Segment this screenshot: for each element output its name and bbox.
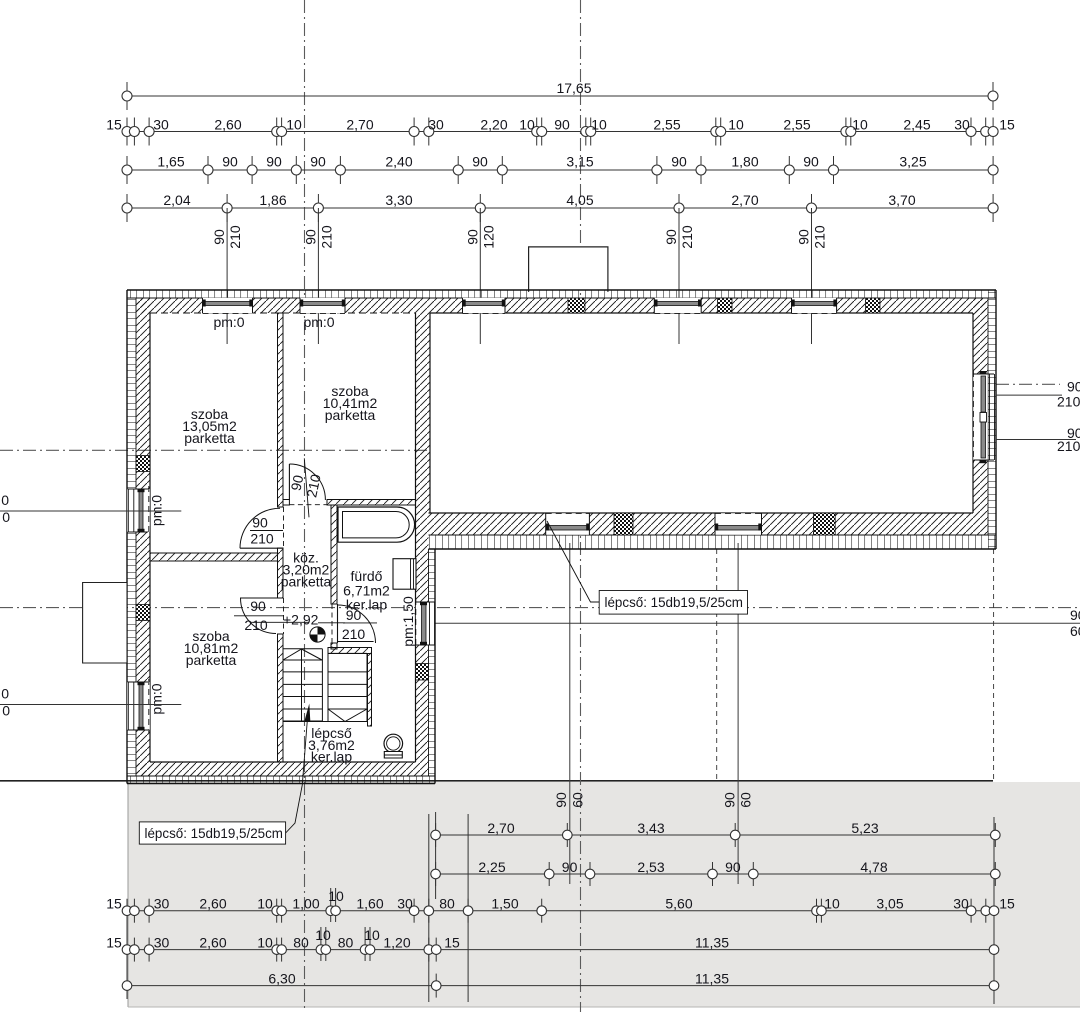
svg-text:0: 0 <box>1 492 9 508</box>
svg-text:6,30: 6,30 <box>268 971 295 987</box>
svg-text:10: 10 <box>257 896 273 912</box>
svg-text:2,55: 2,55 <box>783 117 810 133</box>
svg-text:80: 80 <box>293 935 309 951</box>
svg-text:pm:0: pm:0 <box>149 495 165 526</box>
svg-text:1,65: 1,65 <box>157 154 184 170</box>
svg-text:90: 90 <box>1070 607 1080 623</box>
svg-text:0: 0 <box>2 703 10 719</box>
svg-text:90: 90 <box>553 792 569 808</box>
svg-text:4,05: 4,05 <box>566 192 593 208</box>
svg-text:1,50: 1,50 <box>491 896 518 912</box>
svg-text:2,70: 2,70 <box>731 192 758 208</box>
svg-text:60: 60 <box>1070 623 1080 639</box>
svg-text:90: 90 <box>302 229 318 245</box>
svg-text:2,70: 2,70 <box>346 117 373 133</box>
svg-text:210: 210 <box>342 626 366 642</box>
svg-text:210: 210 <box>1057 394 1080 410</box>
svg-text:+2,92: +2,92 <box>283 612 319 628</box>
svg-text:3,15: 3,15 <box>566 154 593 170</box>
svg-text:2,60: 2,60 <box>199 935 226 951</box>
svg-text:2,20: 2,20 <box>480 117 507 133</box>
svg-text:2,53: 2,53 <box>637 859 664 875</box>
svg-text:210: 210 <box>244 617 268 633</box>
svg-text:1,60: 1,60 <box>356 896 383 912</box>
svg-text:15: 15 <box>999 896 1015 912</box>
svg-text:90: 90 <box>252 515 268 531</box>
svg-text:10: 10 <box>315 927 331 943</box>
svg-text:90: 90 <box>211 229 227 245</box>
svg-text:3,05: 3,05 <box>876 896 903 912</box>
svg-text:210: 210 <box>679 225 695 249</box>
svg-text:90: 90 <box>721 792 737 808</box>
svg-text:lépcső: 15db19,5/25cm: lépcső: 15db19,5/25cm <box>605 595 743 610</box>
svg-text:3,30: 3,30 <box>385 192 412 208</box>
svg-text:parketta: parketta <box>325 407 376 423</box>
svg-text:parketta: parketta <box>186 652 237 668</box>
svg-text:1,80: 1,80 <box>731 154 758 170</box>
svg-text:120: 120 <box>480 225 496 249</box>
svg-text:90: 90 <box>266 154 282 170</box>
svg-text:30: 30 <box>954 117 970 133</box>
svg-text:2,40: 2,40 <box>385 154 412 170</box>
svg-text:pm:0: pm:0 <box>149 683 165 714</box>
svg-text:30: 30 <box>153 117 169 133</box>
svg-text:10: 10 <box>364 927 380 943</box>
svg-text:80: 80 <box>338 935 354 951</box>
svg-text:2,70: 2,70 <box>487 820 514 836</box>
svg-text:30: 30 <box>428 117 444 133</box>
svg-text:1,86: 1,86 <box>259 192 286 208</box>
svg-text:pm:1,50: pm:1,50 <box>400 596 416 647</box>
svg-text:11,35: 11,35 <box>695 935 729 951</box>
svg-text:90: 90 <box>562 859 578 875</box>
svg-text:90: 90 <box>222 154 238 170</box>
svg-text:30: 30 <box>397 896 413 912</box>
svg-text:2,04: 2,04 <box>163 192 190 208</box>
svg-text:2,25: 2,25 <box>478 859 505 875</box>
svg-text:90: 90 <box>310 154 326 170</box>
svg-text:90: 90 <box>250 598 266 614</box>
svg-text:10: 10 <box>591 117 607 133</box>
svg-text:15: 15 <box>106 117 122 133</box>
svg-text:90: 90 <box>803 154 819 170</box>
svg-text:60: 60 <box>569 792 585 808</box>
svg-text:3,43: 3,43 <box>637 820 664 836</box>
svg-text:210: 210 <box>812 225 828 249</box>
svg-text:pm:0: pm:0 <box>213 314 244 330</box>
svg-text:0: 0 <box>1 686 9 702</box>
svg-text:210: 210 <box>227 225 243 249</box>
svg-text:90: 90 <box>464 229 480 245</box>
svg-text:90: 90 <box>671 154 687 170</box>
svg-text:10: 10 <box>328 888 344 904</box>
svg-text:10: 10 <box>852 117 868 133</box>
svg-text:15: 15 <box>106 896 122 912</box>
svg-text:60: 60 <box>738 792 754 808</box>
svg-text:ker.lap: ker.lap <box>311 749 352 765</box>
svg-text:90: 90 <box>663 229 679 245</box>
svg-text:90: 90 <box>725 859 741 875</box>
svg-text:90: 90 <box>472 154 488 170</box>
svg-text:10: 10 <box>257 935 273 951</box>
svg-text:5,60: 5,60 <box>665 896 692 912</box>
svg-text:11,35: 11,35 <box>695 971 729 987</box>
svg-text:30: 30 <box>154 896 170 912</box>
svg-text:15: 15 <box>444 935 460 951</box>
svg-text:2,60: 2,60 <box>214 117 241 133</box>
svg-text:90: 90 <box>796 229 812 245</box>
svg-text:15: 15 <box>999 117 1015 133</box>
svg-text:4,78: 4,78 <box>860 859 887 875</box>
svg-text:2,55: 2,55 <box>653 117 680 133</box>
svg-text:30: 30 <box>953 896 969 912</box>
svg-text:30: 30 <box>154 935 170 951</box>
svg-text:0: 0 <box>2 509 10 525</box>
svg-text:2,45: 2,45 <box>903 117 930 133</box>
svg-text:ker.lap: ker.lap <box>346 597 387 613</box>
svg-text:lépcső: 15db19,5/25cm: lépcső: 15db19,5/25cm <box>145 826 283 841</box>
svg-text:10: 10 <box>286 117 302 133</box>
svg-text:2,60: 2,60 <box>199 896 226 912</box>
svg-text:3,70: 3,70 <box>888 192 915 208</box>
svg-text:10: 10 <box>728 117 744 133</box>
svg-text:90: 90 <box>554 117 570 133</box>
svg-text:pm:0: pm:0 <box>303 314 334 330</box>
svg-text:10: 10 <box>824 896 840 912</box>
svg-text:10: 10 <box>519 117 535 133</box>
svg-text:210: 210 <box>318 225 334 249</box>
svg-text:parketta: parketta <box>184 430 235 446</box>
svg-text:1,00: 1,00 <box>292 896 319 912</box>
svg-text:parketta: parketta <box>281 574 332 590</box>
svg-text:90: 90 <box>1067 379 1080 395</box>
svg-text:17,65: 17,65 <box>556 80 591 96</box>
svg-text:15: 15 <box>106 935 122 951</box>
svg-text:3,25: 3,25 <box>899 154 926 170</box>
svg-text:210: 210 <box>250 531 274 547</box>
svg-text:80: 80 <box>439 896 455 912</box>
svg-text:1,20: 1,20 <box>383 935 410 951</box>
svg-text:210: 210 <box>1057 438 1080 454</box>
svg-text:5,23: 5,23 <box>851 820 878 836</box>
